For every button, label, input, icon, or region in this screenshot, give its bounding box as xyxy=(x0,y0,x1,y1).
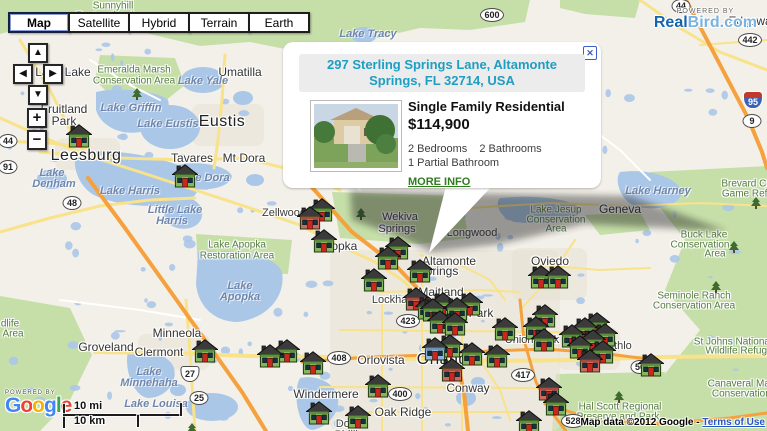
map-type-button-satellite[interactable]: Satellite xyxy=(68,12,130,33)
property-marker[interactable] xyxy=(66,124,92,153)
google-logo-text: Google xyxy=(5,396,71,416)
property-marker[interactable] xyxy=(306,401,332,430)
property-marker[interactable] xyxy=(543,392,569,421)
google-logo-letter: o xyxy=(32,394,44,417)
property-marker[interactable] xyxy=(257,344,283,373)
property-partial-bathrooms: 1 Partial Bathroom xyxy=(408,157,499,169)
map-type-button-earth[interactable]: Earth xyxy=(248,12,310,33)
property-marker[interactable] xyxy=(345,405,371,431)
property-marker[interactable] xyxy=(311,229,337,258)
pan-right-button[interactable]: ▶ xyxy=(43,64,63,84)
property-marker[interactable] xyxy=(638,353,664,382)
property-info-window: ✕ 297 Sterling Springs Lane, Altamonte S… xyxy=(283,42,601,188)
realbird-name-secondary: Bird.com xyxy=(688,14,757,31)
close-icon[interactable]: ✕ xyxy=(583,46,597,60)
property-photo[interactable] xyxy=(310,100,402,172)
map-type-toolbar: Map Satellite Hybrid Terrain Earth xyxy=(10,12,310,33)
property-type: Single Family Residential xyxy=(408,99,593,115)
pan-left-button[interactable]: ◀ xyxy=(13,64,33,84)
pan-down-button[interactable]: ▼ xyxy=(28,85,48,105)
property-marker[interactable] xyxy=(172,164,198,193)
map-type-button-terrain[interactable]: Terrain xyxy=(188,12,250,33)
map-data-copyright: Map data ©2012 Google - xyxy=(581,417,703,428)
property-details: Single Family Residential $114,900 2 Bed… xyxy=(408,99,593,190)
property-marker[interactable] xyxy=(361,268,387,297)
property-price: $114,900 xyxy=(408,115,593,134)
more-info-link[interactable]: MORE INFO xyxy=(408,176,470,188)
property-marker[interactable] xyxy=(516,410,542,431)
zoom-in-button[interactable]: + xyxy=(27,108,47,128)
property-marker[interactable] xyxy=(407,259,433,288)
property-marker[interactable] xyxy=(365,374,391,403)
property-photo-image xyxy=(314,104,398,168)
google-logo-letter: o xyxy=(20,394,32,417)
map-attribution: Map data ©2012 Google - Terms of Use xyxy=(581,417,765,428)
google-logo-letter: e xyxy=(61,394,72,417)
property-marker[interactable] xyxy=(300,351,326,380)
property-marker[interactable] xyxy=(484,344,510,373)
property-marker[interactable] xyxy=(492,317,518,346)
property-marker[interactable] xyxy=(577,349,603,378)
property-bathrooms: 2 Bathrooms xyxy=(479,143,541,155)
realbird-logo[interactable]: POWERED BY RealBird.com xyxy=(654,8,757,30)
pan-up-button[interactable]: ▲ xyxy=(28,43,48,63)
google-logo-letter: g xyxy=(44,394,56,417)
terms-of-use-link[interactable]: Terms of Use xyxy=(702,417,765,428)
google-logo-letter: G xyxy=(5,394,20,417)
realbird-name-primary: Real xyxy=(654,14,688,31)
map-type-button-map[interactable]: Map xyxy=(8,12,70,33)
zoom-out-button[interactable]: − xyxy=(27,130,47,150)
google-logo[interactable]: POWERED BY Google xyxy=(5,390,71,416)
property-marker[interactable] xyxy=(439,358,465,387)
property-address: 297 Sterling Springs Lane, Altamonte Spr… xyxy=(299,54,585,92)
property-marker[interactable] xyxy=(531,328,557,357)
map-viewport[interactable]: Lady LakeUmatillaFruitlandParkEustisLees… xyxy=(0,0,767,431)
property-marker[interactable] xyxy=(192,339,218,368)
property-marker[interactable] xyxy=(545,265,571,294)
map-type-button-hybrid[interactable]: Hybrid xyxy=(128,12,190,33)
property-bedrooms: 2 Bedrooms xyxy=(408,143,467,155)
